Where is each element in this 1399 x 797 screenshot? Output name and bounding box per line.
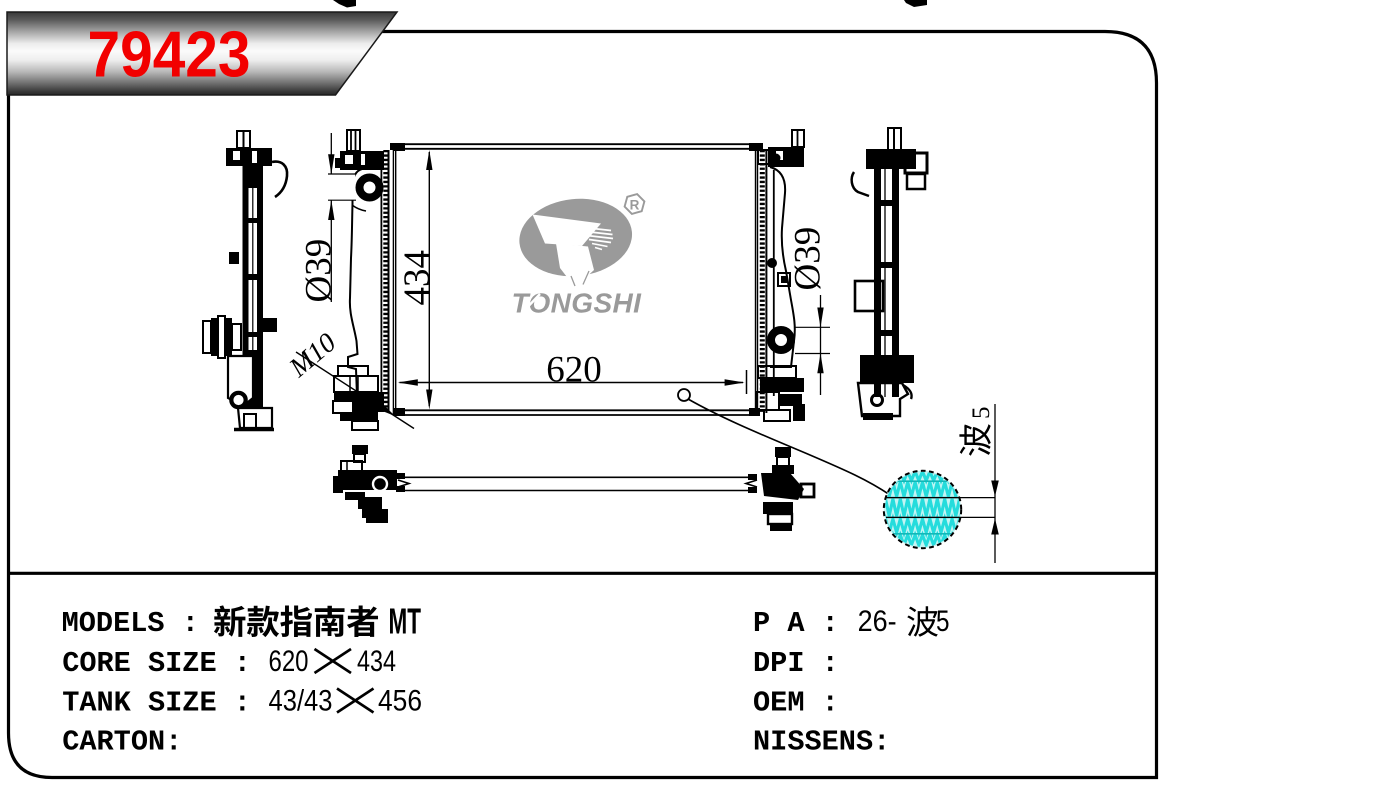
svg-text:OEM :: OEM : [753,687,839,720]
svg-text:R: R [630,197,640,212]
svg-text:Ø39: Ø39 [788,227,829,291]
svg-text:434: 434 [357,645,396,678]
svg-text:CARTON:: CARTON: [62,726,182,759]
svg-text:434: 434 [397,250,438,306]
svg-text:5: 5 [936,605,950,638]
svg-text:620: 620 [546,350,602,391]
svg-text:Ø39: Ø39 [299,239,340,303]
svg-text:43/43: 43/43 [269,685,333,718]
svg-text:5: 5 [968,407,995,420]
svg-text:DPI :: DPI : [753,647,839,680]
svg-text:456: 456 [378,685,422,718]
svg-text:79423: 79423 [88,18,251,91]
svg-text:TANK SIZE :: TANK SIZE : [62,687,251,720]
svg-text:MT: MT [389,601,422,642]
svg-text:26-: 26- [858,605,897,638]
svg-text:MODELS :: MODELS : [62,607,199,640]
svg-text:CORE SIZE :: CORE SIZE : [62,647,251,680]
svg-text:620: 620 [269,645,309,678]
svg-text:NISSENS:: NISSENS: [753,726,890,759]
svg-text:P A :: P A : [753,607,839,640]
